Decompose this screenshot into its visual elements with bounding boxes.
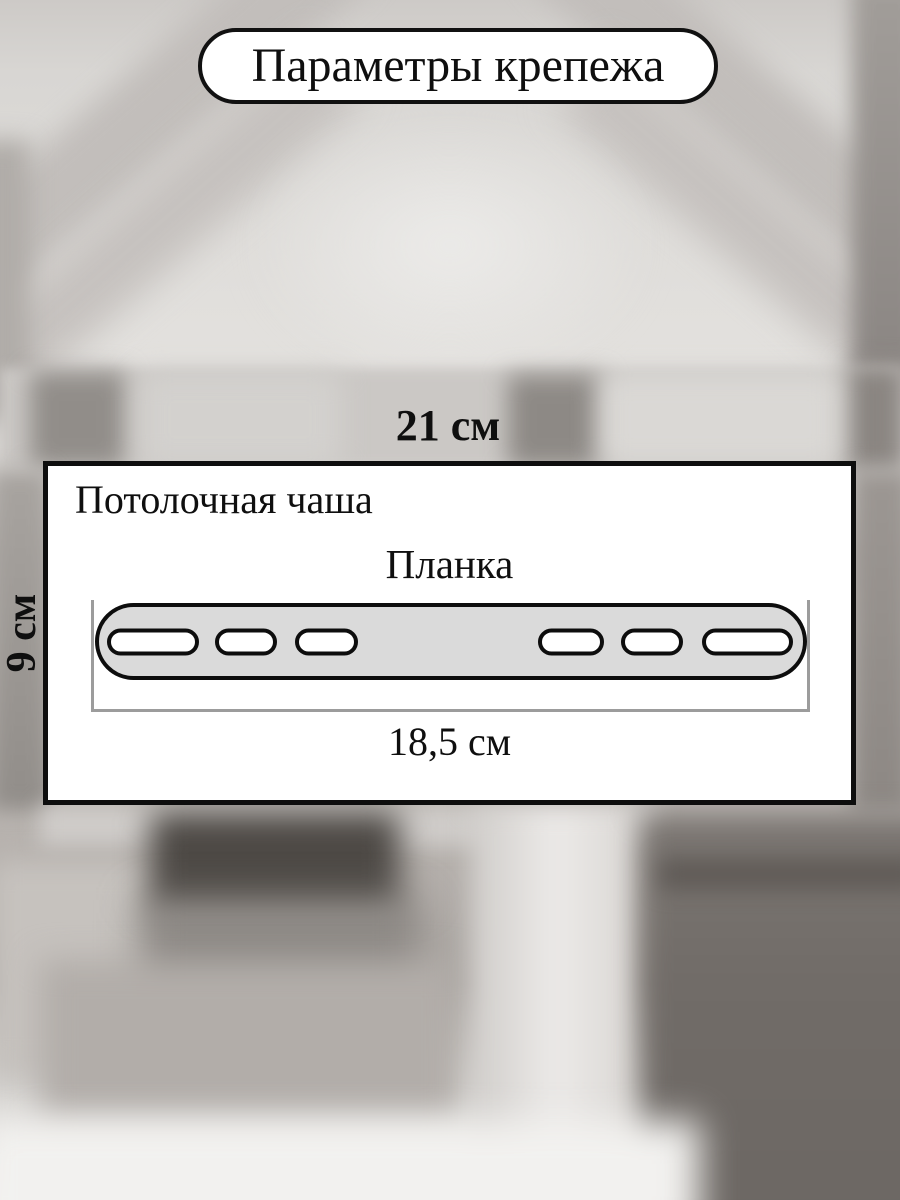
dimension-width-label: 21 см [148,400,748,451]
bar-hole [107,628,199,655]
title-pill: Параметры крепежа [198,28,718,104]
page-title: Параметры крепежа [252,42,665,90]
bar-hole [215,628,277,655]
dimension-height-label: 9 см [1,572,43,694]
bar-hole [702,628,793,655]
mounting-bar [95,603,807,680]
infographic-root: Параметры крепежа 21 см 9 см Потолочная … [0,0,900,1200]
bar-length-label: 18,5 см [48,718,851,765]
diagram-panel: Потолочная чаша Планка 18,5 см [43,461,856,805]
bar-hole [295,628,358,655]
panel-title: Потолочная чаша [75,476,373,523]
bar-hole [621,628,683,655]
bar-label: Планка [48,540,851,588]
bar-hole [538,628,604,655]
